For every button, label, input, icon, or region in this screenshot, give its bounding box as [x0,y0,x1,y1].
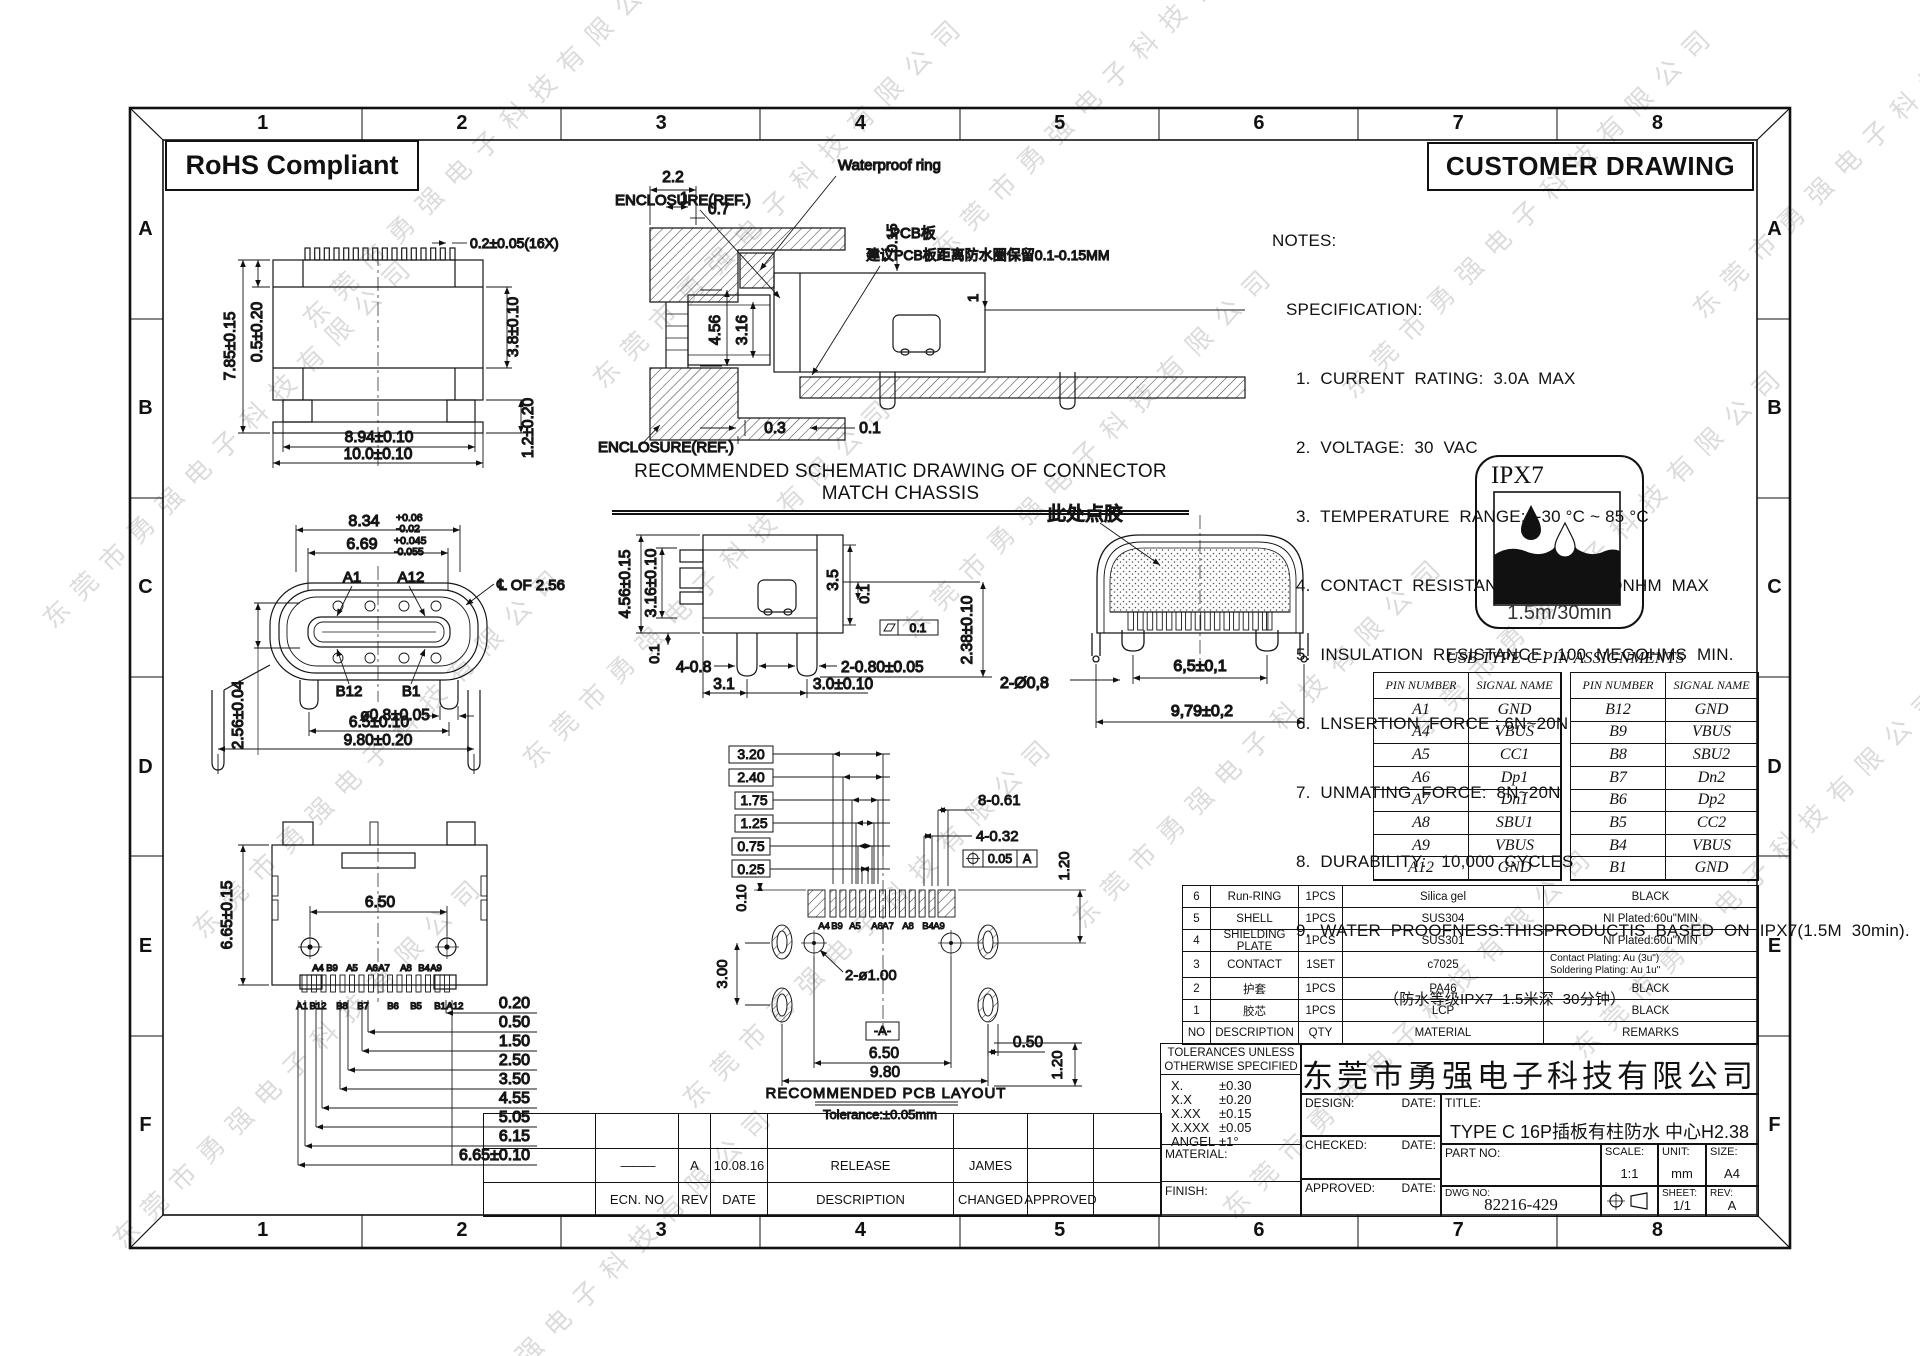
bom-remarks: NI Plated:60u"MIN [1544,908,1758,930]
pin-b1-label: B1 [402,683,420,700]
design-label: DESIGN: [1305,1096,1354,1110]
date-label: DATE: [1402,1181,1436,1195]
zone-row: A [1757,140,1792,319]
pin-cell: A1 [1374,699,1469,722]
date-label: DATE: [1402,1096,1436,1110]
rear-dimensions [1070,523,1304,728]
rohs-label: RoHS Compliant [186,150,399,181]
floating-drop-icon [1555,523,1575,557]
unit-label: UNIT: [1662,1146,1690,1158]
svg-text:A4: A4 [818,921,830,932]
signal-cell: VBUS [1666,835,1758,858]
notes-heading: NOTES: [1272,229,1742,252]
tolerance-row: X.±0.30 [1161,1078,1301,1092]
zone-col: 5 [960,1213,1159,1247]
dim-2-holes: 2-ø1.00 [845,967,897,984]
waterproof-ring-section [740,253,774,288]
size-cell: SIZE: A4 [1705,1143,1759,1187]
dim-0-50: 0.50 [1013,1034,1044,1051]
approved-label: APPROVED: [1305,1181,1375,1195]
section-dimensions [650,176,985,444]
dim-6-50: 6.50 [869,1045,900,1062]
pcb-round-holes [801,930,964,956]
solder-leg [880,372,895,409]
bom-mat: SUS304 [1343,908,1544,930]
view-top: 0.2±0.05(16X) 7.85±0.15 0.5±0.20 3.8±0.1… [222,235,559,470]
svg-text:A9: A9 [430,963,442,974]
zone-col: 2 [362,1213,561,1247]
svg-text:1.25: 1.25 [740,815,767,831]
zone-numbers-top: 12 34 56 78 [163,106,1757,140]
bom-no: 1 [1183,1000,1211,1022]
pin-cell: A7 [1374,790,1469,813]
zone-col: 7 [1359,106,1558,140]
dim-tongue-tol-up: +0.045 [394,535,427,547]
bom-table: 6Run-RING1PCSSilica gelBLACK 5SHELL1PCSS… [1182,885,1759,1045]
pcb-lower-dims [737,943,1082,1086]
pcb-boxed-dims [729,746,773,877]
bom-header: NO [1183,1022,1211,1044]
rev-header: ECN. NO [596,1183,679,1216]
rev-header: APPROVED [1028,1183,1094,1216]
dim-0-3: 0.3 [764,420,786,437]
title-label: TITLE: [1445,1096,1481,1110]
signal-col-header: SIGNAL NAME [1666,673,1758,699]
flatness-callout [880,620,938,635]
view-side: 0.1 4.56±0.15 [617,535,992,698]
checked-label: CHECKED: [1305,1138,1367,1152]
svg-text:B6: B6 [387,1001,399,1012]
dim-height-total: 7.85±0.15 [222,312,239,381]
dim-side-total-h: 4.56±0.15 [617,550,634,619]
pin-cell: B9 [1571,722,1666,745]
dim-3-1: 3.1 [713,676,735,693]
dim-1: 1 [680,190,689,207]
pin-cell: B6 [1571,790,1666,813]
customer-drawing-label: CUSTOMER DRAWING [1446,151,1735,182]
bom-desc: Run-RING [1211,886,1299,908]
scale-cell: SCALE: 1:1 [1600,1143,1659,1187]
pcb-bar [800,377,1245,398]
dim-rear-span: 6,5±0,1 [1173,658,1226,675]
drop-icon [1521,505,1541,540]
pcb-boxed-dim-values: 3.202.40 1.751.25 0.750.25 [737,746,767,877]
part-no-label: PART NO: [1445,1146,1500,1160]
projection-cell [1600,1185,1659,1217]
zone-row: B [1757,319,1792,498]
waterproof-ring-label: Waterproof ring [838,157,941,174]
bom-no: 2 [1183,978,1211,1000]
bom-qty: 1PCS [1299,978,1343,1000]
svg-text:A6: A6 [871,921,883,932]
bom-desc: 胶芯 [1211,1000,1299,1022]
bom-desc: SHELL [1211,908,1299,930]
bom-no: 6 [1183,886,1211,908]
rohs-compliant-badge: RoHS Compliant [165,140,419,191]
signal-cell: Dp1 [1469,767,1561,790]
zone-row: F [128,1036,163,1215]
ipx7-label: IPX7 [1491,462,1544,490]
dim-width-inner: 8.94±0.10 [345,429,414,446]
bom-remarks: Contact Plating: Au (3u")Soldering Plati… [1544,952,1758,978]
signal-cell: Dn2 [1666,767,1758,790]
shield-leg [440,680,458,709]
pin-cell: B7 [1571,767,1666,790]
dim-3-0: 3.0±0.10 [813,676,874,693]
svg-text:B1: B1 [434,1001,446,1012]
tolerance-title2: OTHERWISE SPECIFIED [1161,1060,1301,1074]
signal-cell: SBU1 [1469,812,1561,835]
finish-label: FINISH: [1165,1184,1208,1198]
pin-a12-label: A12 [398,569,425,586]
zone-col: 7 [1359,1213,1558,1247]
rev-header: REV [679,1183,711,1216]
enclosure-top-hatched [650,228,845,302]
signal-cell: CC1 [1469,744,1561,767]
design-cell: DESIGN: DATE: [1300,1093,1442,1137]
bom-qty: 1PCS [1299,1000,1343,1022]
bom-header: QTY [1299,1022,1343,1044]
dim-9-80: 9.80 [870,1064,901,1081]
zone-col: 6 [1159,1213,1358,1247]
pin-cell: A5 [1374,744,1469,767]
checked-cell: CHECKED: DATE: [1300,1135,1442,1180]
bom-mat: LCP [1343,1000,1544,1022]
projection-symbol-icon [1607,1191,1651,1211]
bom-qty: 1SET [1299,952,1343,978]
bom-no: 4 [1183,930,1211,952]
bom-desc: 护套 [1211,978,1299,1000]
dim-1-20-right: 1.20 [1056,851,1073,880]
dim-bottom-h: 6.65±0.15 [219,881,236,950]
dim-rear-legs: 2-Ø0,8 [1000,675,1049,692]
dim-mid-height: 3.8±0.10 [505,297,522,358]
pin-a1-label: A1 [343,569,361,586]
enclosure-top-label: ENCLOSURE(REF.) [615,192,751,209]
bom-qty: 1PCS [1299,930,1343,952]
rear-pins [1128,612,1272,630]
revision-table: ——— A 10.08.16 RELEASE JAMES ECN. NO REV… [483,1113,1162,1217]
pcb-right-dims [754,810,1086,943]
view-section: ENCLOSURE(REF.) ENCLOSURE(REF.) Waterpro… [598,157,1245,456]
dim-3-00: 3.00 [714,959,731,988]
pin-cell: B12 [1571,699,1666,722]
drawing-title: TYPE C 16P插板有柱防水 中心H2.38 [1441,1118,1758,1144]
dim-gap-bottom: 0.1 [646,644,662,664]
bom-remarks: BLACK [1544,978,1758,1000]
dim-side-mid-h: 3.16±0.10 [643,548,660,617]
zone-letters-right: AB CD EF [1757,140,1792,1215]
flatness-icon [884,624,895,631]
bom-desc: CONTACT [1211,952,1299,978]
pin-cell: A12 [1374,857,1469,880]
bom-no: 3 [1183,952,1211,978]
svg-text:0.20: 0.20 [499,995,530,1012]
svg-text:2.40: 2.40 [737,769,764,785]
rev-ecn: ——— [596,1149,679,1183]
dim-2-38: 2.38±0.10 [959,595,976,664]
bottom-pins [302,975,450,992]
dim-shell-width: 8.34 [348,513,379,530]
position-tolerance-datum: A [1023,852,1032,866]
scale-label: SCALE: [1605,1146,1644,1158]
dim-0-15: 0.15 [884,223,901,252]
svg-text:2.50: 2.50 [499,1052,530,1069]
dim-3-16: 3.16 [734,315,751,345]
top-dimensions [238,243,527,468]
size-label: SIZE: [1710,1146,1738,1158]
pin-cell: B5 [1571,812,1666,835]
dim-hole-span: 6.50 [365,894,396,911]
svg-text:B8: B8 [336,1001,348,1012]
watermark: 东莞市勇强电子科技有限公司 [183,552,577,946]
zone-row: C [1757,498,1792,677]
watermark: 东莞市勇强电子科技有限公司 [893,252,1287,646]
company-cell: 东莞市勇强电子科技有限公司 [1300,1043,1759,1095]
signal-cell: Dn1 [1469,790,1561,813]
dim-3-5: 3.5 [825,569,842,591]
watermark: 东莞市勇强电子科技有限公司 [673,722,1067,1116]
signal-cell: GND [1666,857,1758,880]
pin-cell: A4 [1374,722,1469,745]
zone-row: C [128,498,163,677]
centerline-callout: ℄ OF 2.56 [496,577,565,594]
dim-tongue-tol-dn: -0.055 [394,546,424,558]
part-no-cell: PART NO: [1440,1143,1602,1187]
company-name: 东莞市勇强电子科技有限公司 [1301,1051,1758,1096]
glue-fill [1110,548,1290,612]
signal-cell: Dp2 [1666,790,1758,813]
svg-text:0.25: 0.25 [737,861,764,877]
approved-cell: APPROVED: DATE: [1300,1178,1442,1217]
material-label: MATERIAL: [1165,1147,1227,1161]
zone-row: D [128,678,163,857]
dim-1-20-bottom: 1.20 [1049,1050,1066,1079]
tolerance-box: TOLERANCES UNLESS OTHERWISE SPECIFIED X.… [1160,1043,1302,1217]
zone-col: 4 [761,1213,960,1247]
enclosure-bottom-label: ENCLOSURE(REF.) [598,439,734,456]
dim-gap-top: 0.1 [856,584,872,604]
rev-value: A [1706,1198,1758,1213]
watermark: 东莞市勇强电子科技有限公司 [583,2,977,396]
svg-text:B9: B9 [831,921,843,932]
svg-text:A7: A7 [882,921,894,932]
bom-desc: SHIELDING PLATE [1211,930,1299,952]
dim-0-1: 0.1 [859,420,881,437]
svg-text:B4: B4 [418,963,430,974]
dim-feet-height: 1.2±0.20 [520,398,537,459]
dim-tongue-width: 6.69 [346,536,377,553]
sheet-cell: SHEET: 1/1 [1657,1185,1707,1217]
dim-0-7: 0.7 [708,201,730,218]
watermark: 东莞市勇强电子科技有限公司 [513,382,907,776]
bottom-pin-labels-top: A4B9 A5A6 A7A8 B4A9 [312,963,442,974]
pin-table-title: USB TYPE-C PIN ASSIGNMENTS [1373,648,1757,668]
scale-value: 1:1 [1601,1166,1658,1181]
datum-label: -A- [874,1023,891,1038]
dim-shell-tol-dn: -0.02 [396,523,420,535]
outer-leg [468,690,480,770]
rev-header: DESCRIPTION [768,1183,954,1216]
dim-leg-span: 6.5±0.10 [349,714,410,731]
solder-leg [797,633,817,676]
signal-cell: VBUS [1469,722,1561,745]
rev-header: DATE [711,1183,768,1216]
rev-approved [1028,1149,1094,1183]
dim-4-0-32: 4-0.32 [976,828,1019,845]
pin-b12-label: B12 [336,683,363,700]
position-tolerance-frame [963,850,1037,867]
dim-pin-width: 0.2±0.05(16X) [470,235,559,251]
bom-mat: c7025 [1343,952,1544,978]
dim-4-56: 4.56 [707,315,724,345]
dim-0-10: 0.10 [733,884,749,911]
tolerance-title: TOLERANCES UNLESS [1161,1046,1301,1060]
dim-shell-tol-up: +0.06 [396,512,423,524]
bottom-pin-labels-bottom: A1B12 B8B7 B6B5 B1A12 [296,1001,463,1012]
svg-text:1.50: 1.50 [499,1033,530,1050]
pcb-label: PCB板 [890,224,936,242]
ipx7-badge: IPX7 1.5m/30min [1475,455,1644,629]
bom-remarks: BLACK [1544,1000,1758,1022]
ipx7-caption: 1.5m/30min [1477,602,1642,625]
title-cell: TITLE: TYPE C 16P插板有柱防水 中心H2.38 [1440,1093,1759,1145]
dim-total-width: 9.80±0.20 [344,732,413,749]
unit-value: mm [1658,1166,1706,1181]
dim-center-height: 2.56±0.04 [230,680,247,749]
pcb-pads [808,890,955,917]
rev-description: RELEASE [768,1149,954,1183]
svg-text:A12: A12 [447,1001,464,1012]
bom-header: REMARKS [1544,1022,1758,1044]
rev-rev: A [679,1149,711,1183]
signal-cell: SBU2 [1666,744,1758,767]
bom-qty: 1PCS [1299,908,1343,930]
zone-row: A [128,140,163,319]
drawing-sheet: 东莞市勇强电子科技有限公司 东莞市勇强电子科技有限公司 东莞市勇强电子科技有限公… [0,0,1920,1356]
svg-text:0.75: 0.75 [737,838,764,854]
solder-leg [737,633,757,676]
dim-leg-diameter: ø0.8±0.05 [360,707,430,724]
position-tolerance-icon [966,852,980,866]
tolerance-row: X.XXX±0.05 [1161,1120,1301,1134]
view-rear: 此处点胶 2-Ø0,8 6,5±0,1 9,79±0,2 [1000,503,1308,728]
signal-cell: CC2 [1666,812,1758,835]
svg-text:A5: A5 [849,921,861,932]
pin-col-header: PIN NUMBER [1374,673,1469,699]
pcb-layout-title: RECOMMENDED PCB LAYOUT [766,1085,1007,1102]
dim-lid-height: 0.5±0.20 [249,302,266,363]
bom-mat: SUS301 [1343,930,1544,952]
dim-legs2: 2-0.80±0.05 [841,659,924,676]
svg-text:3.50: 3.50 [499,1071,530,1088]
dim-8-0-61: 8-0.61 [978,792,1021,809]
svg-text:1.75: 1.75 [740,792,767,808]
pin-cell: B8 [1571,744,1666,767]
svg-text:4.55: 4.55 [499,1090,530,1107]
note-item: 1. CURRENT RATING: 3.0A MAX [1272,367,1742,390]
zone-row: D [1757,678,1792,857]
pin-cell: B1 [1571,857,1666,880]
connector-body-section [774,273,985,372]
zone-col: 8 [1558,1213,1757,1247]
svg-text:B7: B7 [357,1001,369,1012]
signal-cell: GND [1469,857,1561,880]
rev-cell: REV: A [1705,1185,1759,1217]
dim-width-outer: 10.0±0.10 [344,446,413,463]
zone-numbers-bottom: 12 34 56 78 [163,1213,1757,1247]
pcb-note: 建议PCB板距离防水圈保留0.1-0.15MM [866,247,1109,263]
dim-2-2: 2.2 [662,169,684,186]
notes-subheading: SPECIFICATION: [1272,298,1742,321]
datum-flag [866,1022,899,1040]
pin-cell: A6 [1374,767,1469,790]
bom-mat: Silica gel [1343,886,1544,908]
pin-cell: A8 [1374,812,1469,835]
top-pins [305,248,455,260]
zone-letters-left: AB CD EF [128,140,163,1215]
zone-row: E [128,857,163,1036]
svg-text:0.50: 0.50 [499,1014,530,1031]
date-label: DATE: [1402,1138,1436,1152]
connector-nose [688,295,770,365]
zone-row: E [1757,857,1792,1036]
zone-col: 3 [562,1213,761,1247]
svg-text:B5: B5 [410,1001,422,1012]
rev-changed: JAMES [954,1149,1028,1183]
zone-row: B [128,319,163,498]
pin-table-right: PIN NUMBERSIGNAL NAME B12GND B9VBUS B8SB… [1570,672,1759,881]
pin-cell: A9 [1374,835,1469,858]
zone-col: 3 [562,106,761,140]
bom-header: DESCRIPTION [1211,1022,1299,1044]
position-tolerance-value: 0.05 [988,852,1012,866]
zone-col: 6 [1159,106,1358,140]
dwg-no-cell: DWG NO: 82216-429 [1440,1185,1602,1217]
bom-no: 5 [1183,908,1211,930]
zone-col: 1 [163,1213,362,1247]
rev-date: 10.08.16 [711,1149,768,1183]
rev-header: CHANGED [954,1183,1028,1216]
signal-cell: GND [1469,699,1561,722]
svg-text:A5: A5 [346,963,358,974]
dim-legs4: 4-0.8 [676,659,711,676]
front-dimensions [218,525,494,774]
signal-cell: VBUS [1469,835,1561,858]
svg-text:A1: A1 [296,1001,308,1012]
tolerance-row: X.X±0.20 [1161,1092,1301,1106]
svg-text:A8: A8 [400,963,412,974]
dim-pcb-1: 1 [965,294,982,302]
svg-text:B4: B4 [922,921,934,932]
tolerance-row: X.XX±0.15 [1161,1106,1301,1120]
svg-text:A7: A7 [378,963,390,974]
solder-leg [1060,372,1075,409]
pin-col-header: PIN NUMBER [1571,673,1666,699]
outer-leg [212,690,224,770]
pcb-pad-labels: A4B9 A5A6 A7A8 B4A9 [818,921,945,932]
svg-text:B9: B9 [326,963,338,974]
svg-text:A4: A4 [312,963,324,974]
svg-text:A9: A9 [933,921,945,932]
view-pcb-layout: 3.202.40 1.751.25 0.750.25 [714,746,1086,1122]
watermark: 东莞市勇强电子科技有限公司 [33,242,427,636]
bom-qty: 1PCS [1299,886,1343,908]
svg-text:3.20: 3.20 [737,746,764,762]
size-value: A4 [1706,1166,1758,1181]
svg-text:B12: B12 [310,1001,327,1012]
svg-text:A6: A6 [366,963,378,974]
